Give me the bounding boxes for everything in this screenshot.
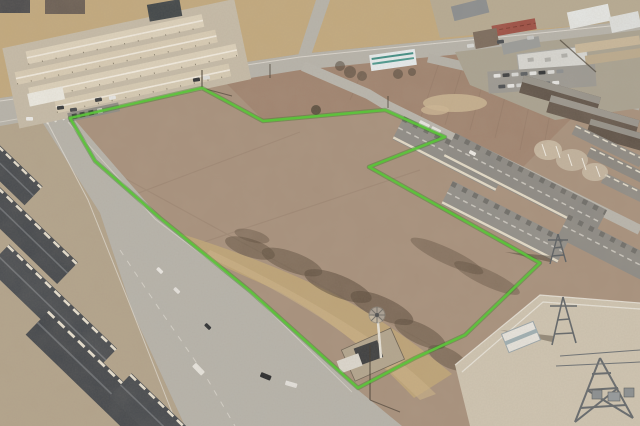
aerial-photo xyxy=(0,0,640,426)
aerial-scene xyxy=(0,0,640,426)
photo-grain xyxy=(0,0,640,426)
